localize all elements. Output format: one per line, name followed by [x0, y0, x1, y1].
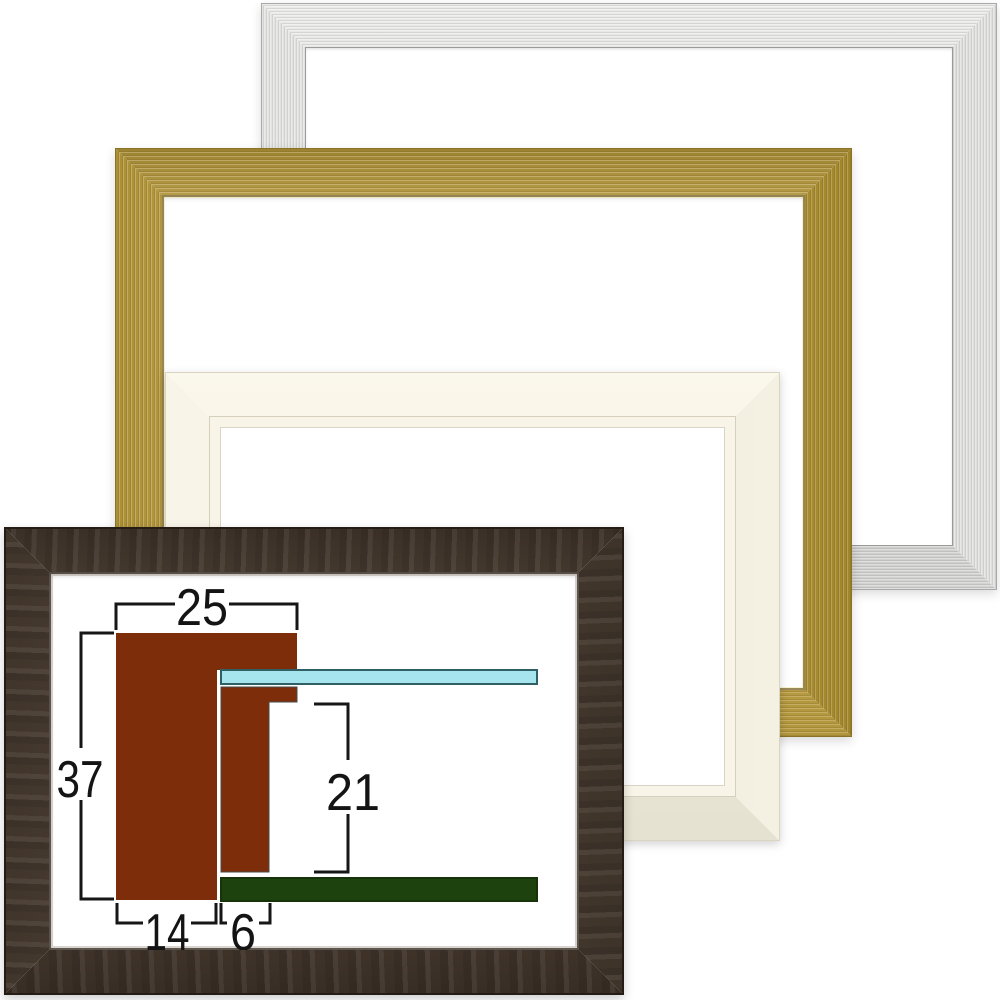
dim-label-overall-height: 37 [57, 751, 104, 809]
glass-strip [221, 670, 537, 684]
backboard-strip [221, 878, 537, 901]
dim-label-rabbet-depth: 21 [326, 764, 380, 822]
rabbet-bar-shape [221, 687, 297, 872]
dim-label-lip-width: 6 [230, 904, 256, 950]
dim-label-face-width: 14 [145, 904, 190, 950]
cross-section-diagram: 25 37 21 14 6 [49, 572, 579, 950]
dim-label-overall-width: 25 [176, 579, 228, 637]
product-image: 25 37 21 14 6 [0, 0, 1000, 1000]
